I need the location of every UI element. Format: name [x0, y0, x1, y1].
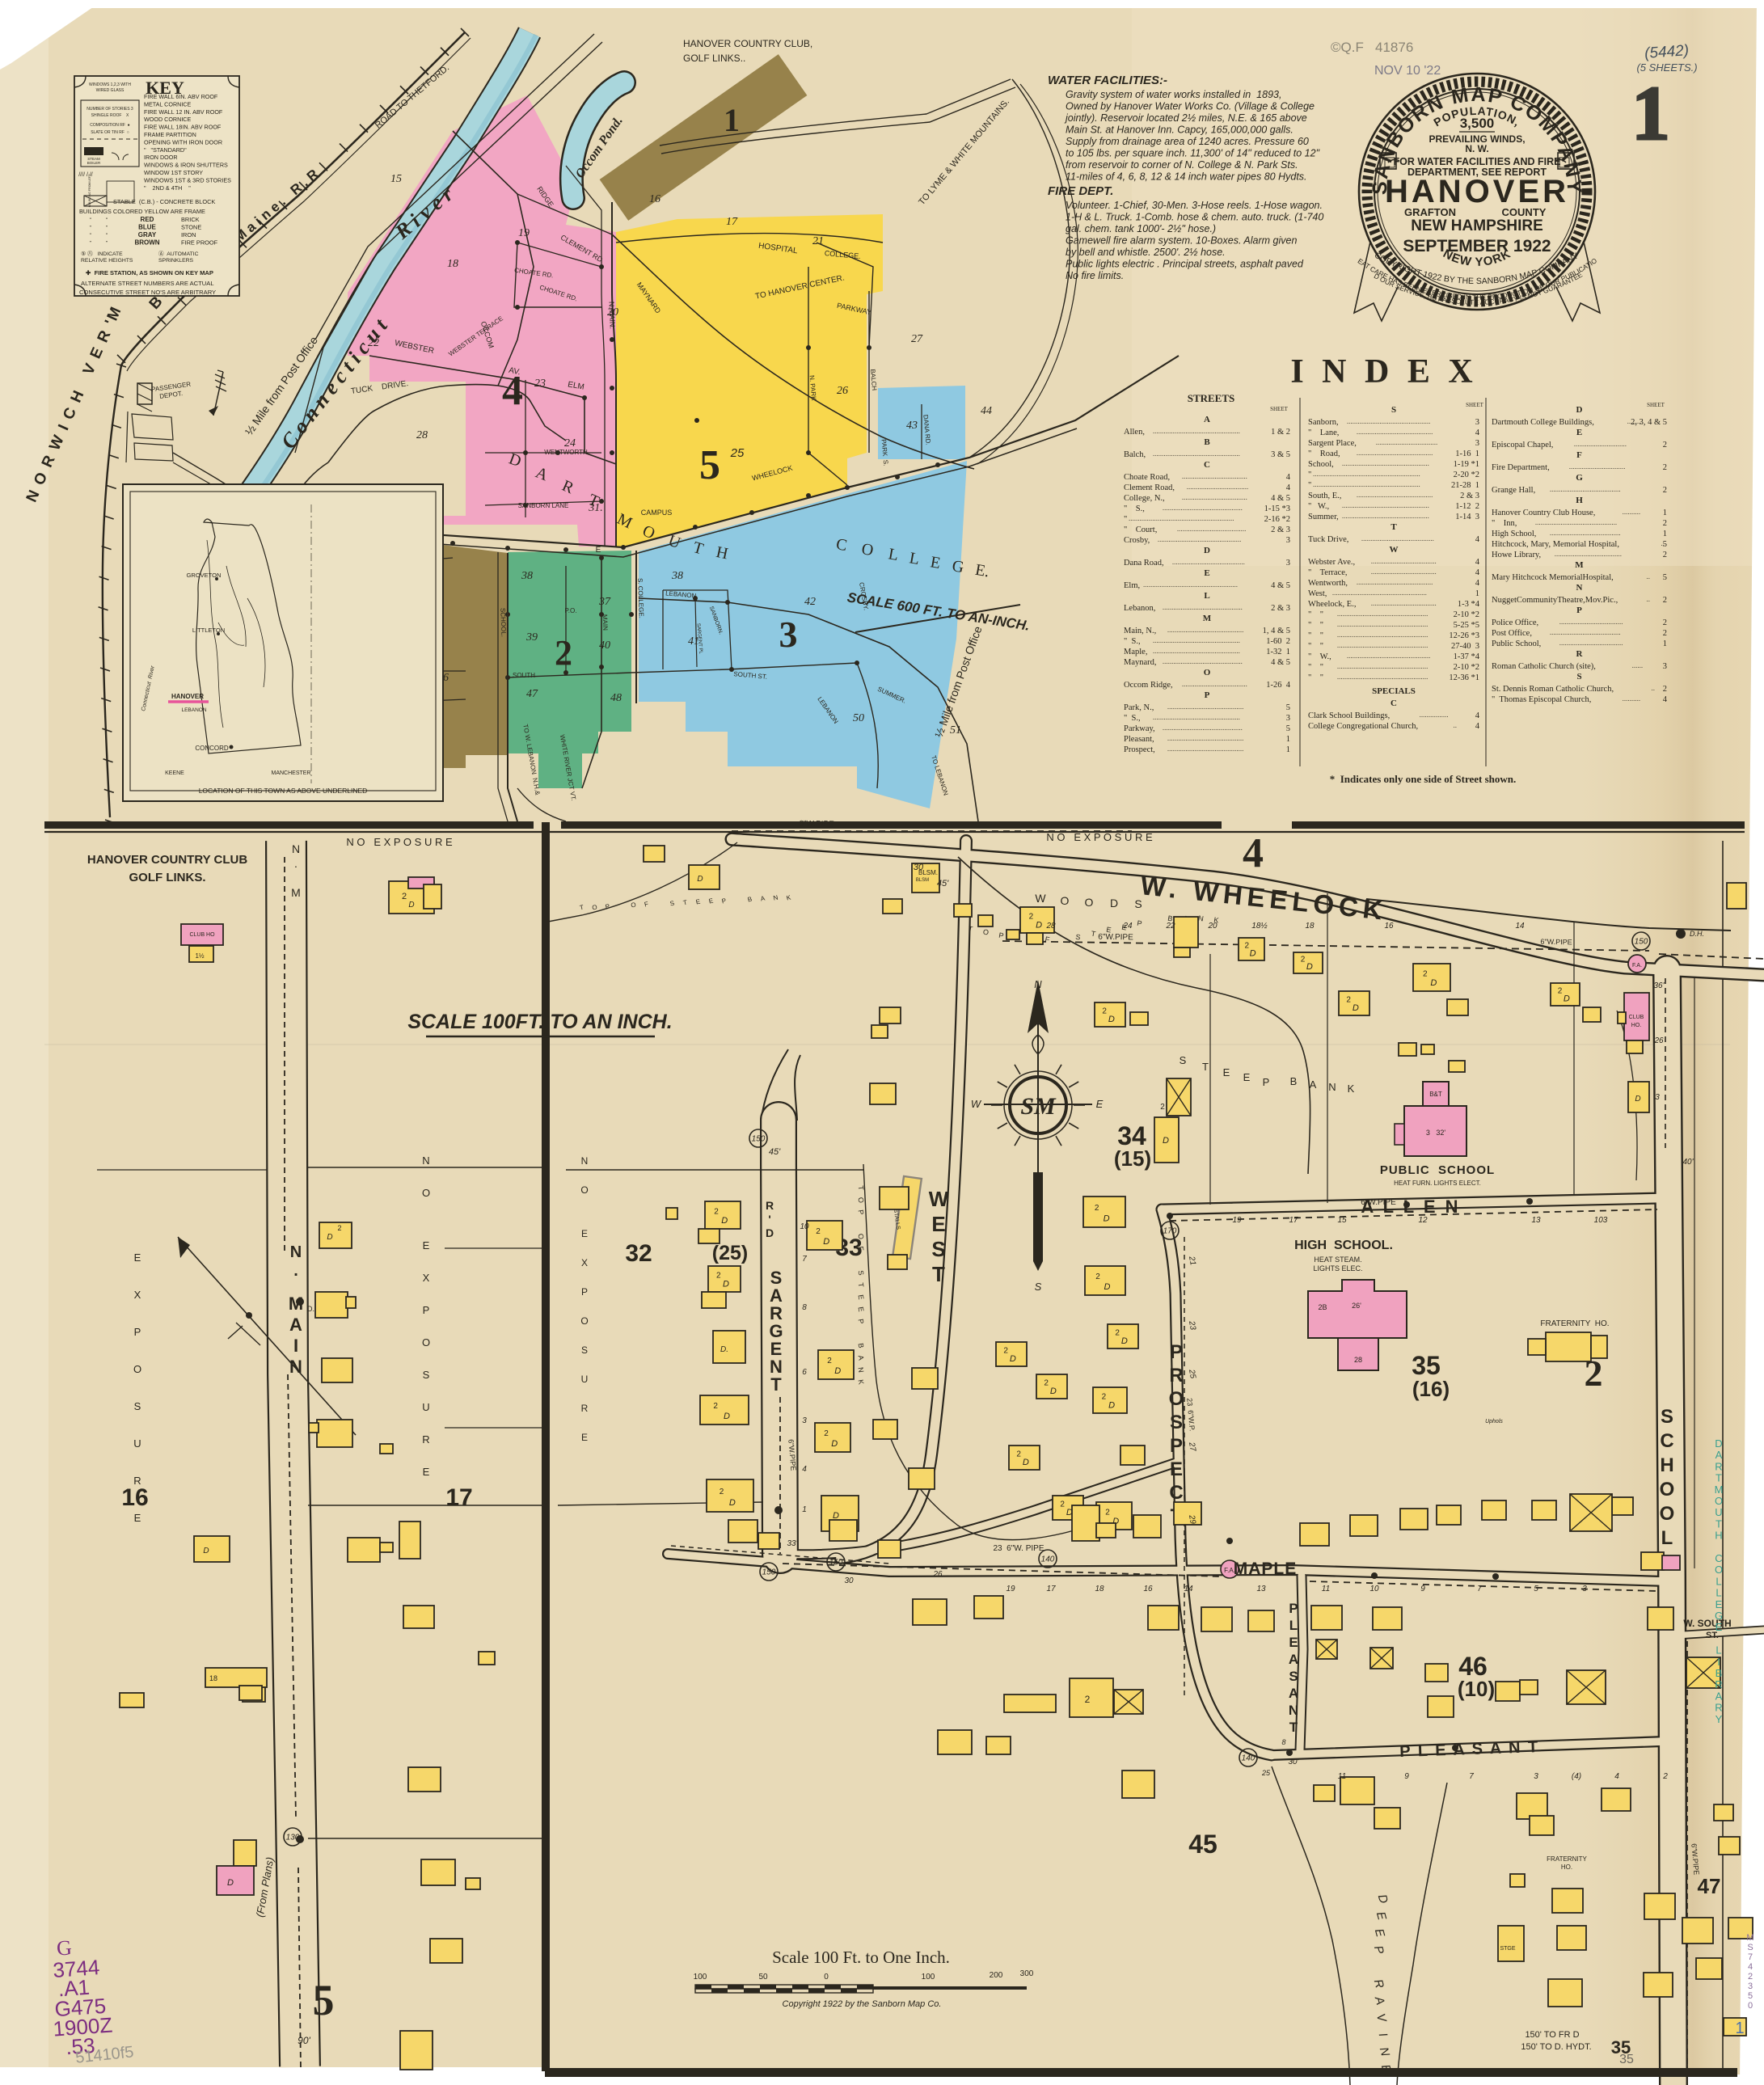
- svg-text:Roman Catholic Church (site),: Roman Catholic Church (site),: [1492, 662, 1596, 671]
- svg-text:16: 16: [121, 1484, 148, 1511]
- svg-text:2-20 *2: 2-20 *2: [1454, 471, 1479, 479]
- svg-text:D: D: [327, 1233, 332, 1242]
- svg-text:FRATERNITY: FRATERNITY: [1547, 1855, 1587, 1863]
- svg-text:28: 28: [1045, 922, 1056, 931]
- svg-text:L: L: [1204, 591, 1209, 601]
- svg-text:MAIN: MAIN: [601, 614, 610, 631]
- svg-text:..............................: ........................................…: [1342, 512, 1429, 520]
- svg-text:..............................: ......................................: [1177, 525, 1247, 533]
- svg-text:1, 4 & 5: 1, 4 & 5: [1263, 627, 1290, 635]
- svg-text:O: O: [133, 1363, 141, 1375]
- svg-text:..............................: ....................................: [1371, 568, 1437, 576]
- svg-text:5: 5: [1663, 540, 1667, 549]
- svg-text:A: A: [1715, 1449, 1723, 1461]
- svg-text:27: 27: [1187, 1441, 1197, 1452]
- svg-text:Main St. at Hanover Inn. Capcy: Main St. at Hanover Inn. Capcy, 165,000,…: [1066, 125, 1293, 136]
- svg-text:R: R: [1715, 1702, 1722, 1714]
- svg-text:D: D: [831, 1439, 838, 1449]
- svg-text:P.O.: P.O.: [565, 607, 577, 614]
- svg-text:SM: SM: [1020, 1093, 1057, 1120]
- svg-text:" Road,: " Road,: [1308, 449, 1340, 458]
- svg-text:M: M: [1746, 1933, 1753, 1943]
- svg-text:E: E: [581, 1432, 588, 1443]
- svg-text:GRAFTON: GRAFTON: [1404, 206, 1456, 218]
- svg-text:18: 18: [1095, 1585, 1104, 1593]
- svg-text:Gamewell fire alarm system. 10: Gamewell fire alarm system. 10-Boxes. Al…: [1066, 235, 1297, 247]
- svg-text:WIRED GLASS: WIRED GLASS: [96, 88, 124, 93]
- svg-text:Tuck Drive,: Tuck Drive,: [1308, 535, 1348, 544]
- svg-text:W: W: [1035, 892, 1046, 905]
- svg-text:D: D: [1635, 1095, 1640, 1104]
- svg-text:N: N: [292, 842, 300, 855]
- svg-text:..............................: ........................................…: [1337, 631, 1429, 639]
- svg-text:SCHOOL.: SCHOOL.: [499, 608, 507, 637]
- svg-text:14: 14: [1515, 922, 1525, 931]
- svg-text:STREETS: STREETS: [1188, 392, 1235, 404]
- svg-text:26': 26': [1352, 1302, 1361, 1310]
- svg-text:SHEET: SHEET: [1647, 402, 1665, 408]
- svg-text:LITTLETON: LITTLETON: [192, 627, 225, 634]
- svg-text:B&T: B&T: [1429, 1091, 1442, 1098]
- svg-text:BOILER: BOILER: [87, 161, 101, 165]
- svg-text:..: ..: [1454, 721, 1458, 729]
- svg-text:✚ FIRE STATION, AS SHOWN ON K: ✚ FIRE STATION, AS SHOWN ON KEY MAP: [86, 269, 213, 276]
- svg-text:B: B: [1290, 1075, 1298, 1087]
- svg-text:E: E: [1289, 1635, 1298, 1650]
- svg-text:C: C: [1391, 699, 1397, 708]
- svg-text:(10): (10): [1458, 1677, 1495, 1701]
- svg-text:(16): (16): [1412, 1377, 1450, 1401]
- svg-text:17: 17: [1289, 1216, 1298, 1225]
- svg-text:S: S: [931, 1237, 945, 1261]
- svg-text:" ": " ": [90, 233, 108, 238]
- svg-text:..............................: ....................................: [1182, 680, 1247, 688]
- svg-text:3: 3: [1475, 439, 1479, 448]
- svg-text:Supply from drainage area of 1: Supply from drainage area of 1240 acres.…: [1066, 136, 1309, 147]
- svg-text:" S.,: " S.,: [1124, 637, 1141, 646]
- svg-text:100: 100: [694, 1973, 707, 1982]
- svg-text:R: R: [581, 1403, 589, 1414]
- svg-text:2: 2: [1029, 912, 1034, 921]
- svg-text:O: O: [422, 1187, 430, 1199]
- svg-text:4: 4: [1614, 1772, 1619, 1781]
- svg-text:T: T: [1715, 1517, 1722, 1530]
- svg-text:2: 2: [402, 892, 407, 901]
- svg-text:No fire limits.: No fire limits.: [1066, 270, 1124, 281]
- svg-text:N O E X P O S U R E: N O E X P O S U R E: [346, 836, 453, 848]
- svg-text:90': 90': [298, 2035, 310, 2046]
- svg-text:S: S: [1661, 1406, 1673, 1428]
- svg-text:2: 2: [1663, 463, 1667, 472]
- svg-text:" "STANDARD": " "STANDARD": [144, 146, 187, 154]
- svg-text:K: K: [1348, 1083, 1355, 1095]
- svg-text:..............................: ........................................…: [1153, 636, 1240, 644]
- svg-text:6"W.PIPE: 6"W.PIPE: [1540, 938, 1572, 947]
- svg-text:D: D: [203, 1547, 209, 1555]
- svg-text:P: P: [1289, 1601, 1298, 1616]
- svg-text:N: N: [581, 1155, 589, 1167]
- svg-text:2: 2: [1244, 942, 1249, 951]
- svg-text:HIGH SCHOOL.: HIGH SCHOOL.: [1294, 1239, 1393, 1252]
- svg-text:IRON DOOR: IRON DOOR: [144, 154, 178, 161]
- svg-text:D: D: [1036, 921, 1042, 931]
- svg-text:24: 24: [1122, 922, 1133, 931]
- svg-text:COUNTING FROM LEFT: COUNTING FROM LEFT: [88, 174, 91, 207]
- svg-text:HANOVER: HANOVER: [1385, 174, 1569, 209]
- svg-text:(25): (25): [712, 1242, 748, 1264]
- svg-text:4: 4: [1475, 579, 1480, 588]
- svg-text:45': 45': [769, 1147, 781, 1157]
- svg-text:35: 35: [1619, 2053, 1634, 2066]
- svg-text:2-10 *2: 2-10 *2: [1454, 663, 1479, 672]
- svg-text:3: 3: [1534, 1772, 1538, 1781]
- svg-text:17: 17: [1046, 1585, 1056, 1593]
- svg-text:E: E: [1170, 1458, 1183, 1480]
- svg-text:D: D: [724, 1412, 730, 1421]
- svg-text:P: P: [423, 1304, 430, 1316]
- svg-text:RELATIVE HEIGHTS: RELATIVE HEIGHTS: [81, 258, 133, 264]
- svg-text:G: G: [1715, 1610, 1723, 1622]
- svg-text:4 & 5: 4 & 5: [1271, 494, 1290, 503]
- svg-text:": ": [1124, 515, 1127, 524]
- svg-text:O: O: [580, 1184, 588, 1196]
- svg-text:28: 28: [416, 429, 428, 441]
- svg-text:47: 47: [526, 688, 538, 700]
- svg-text:O: O: [580, 1315, 588, 1327]
- svg-text:" S.,: " S.,: [1124, 714, 1141, 723]
- svg-text:..............................: .......................................: [1550, 485, 1621, 493]
- svg-text:1-16 1: 1-16 1: [1455, 449, 1479, 458]
- svg-text:Maple,: Maple,: [1124, 648, 1147, 656]
- svg-text:O: O: [1715, 1564, 1723, 1576]
- svg-text:5: 5: [1286, 724, 1290, 733]
- svg-text:N.MAIN.: N.MAIN.: [607, 302, 616, 329]
- svg-text:50: 50: [758, 1973, 768, 1982]
- svg-text:D: D: [697, 875, 703, 884]
- svg-text:..............................: ........................................…: [1337, 620, 1429, 628]
- svg-text:D: D: [1023, 1458, 1029, 1467]
- svg-text:..............................: ........................................…: [1337, 641, 1429, 649]
- svg-text:4: 4: [1286, 473, 1291, 482]
- svg-text:Sargent Place,: Sargent Place,: [1308, 439, 1357, 448]
- svg-text:Choate Road,: Choate Road,: [1124, 473, 1170, 482]
- svg-text:Uphols: Uphols: [1485, 1419, 1503, 1424]
- svg-text:2-10 *2: 2-10 *2: [1454, 610, 1479, 619]
- svg-text:16: 16: [649, 193, 660, 205]
- svg-text:..............................: ........................................…: [1163, 657, 1243, 665]
- svg-text:CAMPUS: CAMPUS: [641, 509, 673, 517]
- svg-text:E: E: [581, 1228, 588, 1239]
- svg-text:(4): (4): [1572, 1772, 1581, 1781]
- svg-text:43: 43: [906, 420, 918, 432]
- svg-text:1: 1: [1735, 2020, 1744, 2037]
- svg-text:21: 21: [1187, 1255, 1197, 1266]
- svg-text:9: 9: [1420, 1585, 1425, 1593]
- svg-text:..............................: ........................................…: [1332, 589, 1427, 597]
- svg-text:3,500: 3,500: [1460, 116, 1495, 131]
- svg-text:Fire Department,: Fire Department,: [1492, 463, 1550, 472]
- svg-text:5: 5: [1663, 573, 1667, 582]
- svg-text:U: U: [1715, 1506, 1722, 1518]
- svg-text:..............................: ........................................…: [1357, 428, 1433, 436]
- svg-text:©Q.F 41876: ©Q.F 41876: [1331, 40, 1413, 55]
- svg-text:23: 23: [534, 378, 546, 390]
- svg-text:..............................: ........................................…: [1153, 713, 1240, 721]
- svg-text:5: 5: [1748, 1991, 1753, 2001]
- svg-text:..............................: ........................................…: [1153, 449, 1240, 458]
- svg-text:7: 7: [1469, 1772, 1474, 1781]
- svg-text:17: 17: [726, 216, 738, 228]
- svg-text:E: E: [931, 1212, 945, 1236]
- svg-text:Ⓐ AUTOMATIC: Ⓐ AUTOMATIC: [158, 251, 199, 257]
- svg-text:FIRE WALL 12 IN. ABV ROOF: FIRE WALL 12 IN. ABV ROOF: [144, 108, 223, 116]
- svg-text:FRAME PARTITION: FRAME PARTITION: [144, 131, 196, 138]
- svg-text:Volunteer. 1-Chief, 30-Men. 3-: Volunteer. 1-Chief, 30-Men. 3-Hose reels…: [1066, 200, 1323, 211]
- svg-text:H: H: [1576, 496, 1583, 505]
- svg-text:11: 11: [1338, 1772, 1346, 1781]
- svg-text:200: 200: [990, 1971, 1003, 1980]
- svg-text:..............................: ........................................…: [1167, 734, 1244, 742]
- svg-text:S: S: [423, 1369, 430, 1381]
- svg-text:Dana Road,: Dana Road,: [1124, 559, 1164, 568]
- svg-text:X: X: [423, 1272, 430, 1284]
- svg-text:P: P: [1263, 1076, 1270, 1088]
- svg-text:33': 33': [787, 1539, 798, 1548]
- svg-text:D: D: [1353, 1003, 1359, 1013]
- svg-text:..............................: ........................................…: [1313, 480, 1420, 488]
- svg-text:150' TO FR D: 150' TO FR D: [1525, 2030, 1579, 2040]
- svg-text:R: R: [422, 1433, 429, 1446]
- svg-text:2: 2: [1044, 1379, 1049, 1388]
- svg-text:..............................: ........................................…: [1153, 427, 1240, 435]
- svg-text:LEBANON: LEBANON: [181, 707, 206, 713]
- svg-text:gal. chem. tank 1000'- 2½" hos: gal. chem. tank 1000'- 2½" hose.): [1066, 223, 1216, 234]
- svg-text:T: T: [1391, 522, 1397, 532]
- svg-text:U: U: [422, 1401, 429, 1413]
- svg-text:12-26 *3: 12-26 *3: [1449, 631, 1479, 640]
- svg-text:45: 45: [1188, 1830, 1217, 1859]
- svg-text:.: .: [294, 857, 298, 870]
- svg-text:H: H: [1660, 1454, 1673, 1476]
- svg-text:1: 1: [1286, 735, 1290, 744]
- svg-text:D: D: [1715, 1437, 1722, 1450]
- svg-text:LOCATION OF THIS TOWN AS ABOVE: LOCATION OF THIS TOWN AS ABOVE UNDERLINE…: [199, 787, 368, 795]
- svg-text:CONSECUTIVE STREET NO'S ARE AR: CONSECUTIVE STREET NO'S ARE ARBITRARY: [79, 289, 216, 296]
- svg-text:..............................: ........................................…: [1337, 610, 1429, 618]
- svg-text:ALTERNATE STREET NUMBERS ARE A: ALTERNATE STREET NUMBERS ARE ACTUAL: [81, 280, 214, 287]
- svg-text:OPENING WITH IRON DOOR: OPENING WITH IRON DOOR: [144, 138, 222, 146]
- svg-text:D: D: [1050, 1386, 1057, 1396]
- svg-text:..............................: ........................................…: [1347, 417, 1431, 425]
- svg-text:⑤ ㊇ INDICATE: ⑤ ㊇ INDICATE: [81, 251, 123, 257]
- svg-text:5: 5: [699, 442, 720, 488]
- svg-text:WINDOWS 1ST & 3RD STORIES: WINDOWS 1ST & 3RD STORIES: [144, 176, 231, 184]
- svg-text:150: 150: [829, 1559, 843, 1568]
- svg-text:E: E: [596, 546, 601, 555]
- svg-text:N: N: [1328, 1081, 1336, 1093]
- svg-text:BRICK: BRICK: [181, 216, 200, 223]
- svg-text:..............................: ........................................…: [1535, 518, 1617, 526]
- svg-text:" 2ND & 4TH ": " 2ND & 4TH ": [144, 184, 191, 192]
- svg-text:N: N: [1289, 1703, 1298, 1718]
- svg-text:..............................: ........................................…: [1347, 652, 1431, 660]
- svg-text:PUBLIC SCHOOL: PUBLIC SCHOOL: [1380, 1163, 1495, 1177]
- svg-text:0: 0: [1748, 2001, 1753, 2011]
- svg-text:19: 19: [1232, 1216, 1242, 1225]
- svg-text:2: 2: [716, 1271, 721, 1280]
- svg-text:36': 36': [1653, 981, 1665, 990]
- svg-text:FRATERNITY HO.: FRATERNITY HO.: [1540, 1319, 1609, 1328]
- svg-text:B: B: [1204, 437, 1210, 447]
- svg-text:140: 140: [1242, 1754, 1255, 1763]
- svg-text:D: D: [721, 1216, 728, 1226]
- svg-text:2-16 *2: 2-16 *2: [1264, 515, 1290, 524]
- svg-text:1-37 *4: 1-37 *4: [1454, 652, 1480, 661]
- svg-text:D: D: [1564, 994, 1570, 1003]
- svg-text:2: 2: [1160, 1103, 1165, 1112]
- svg-text:MANCHESTER: MANCHESTER: [271, 770, 310, 776]
- svg-text:1: 1: [1663, 639, 1667, 648]
- svg-text:': ': [768, 1213, 770, 1226]
- svg-text:..............................: ..................................: [1187, 483, 1249, 491]
- svg-text:D: D: [1250, 948, 1256, 958]
- svg-text:S: S: [134, 1400, 141, 1412]
- svg-text:D: D: [723, 1280, 729, 1289]
- svg-text:HANOVER COUNTRY CLUB: HANOVER COUNTRY CLUB: [87, 853, 248, 867]
- svg-text:1-12 2: 1-12 2: [1455, 502, 1479, 511]
- svg-text:.............................: .............................: [1574, 440, 1627, 448]
- svg-text:Clement Road,: Clement Road,: [1124, 483, 1175, 492]
- svg-text:29: 29: [1187, 1513, 1197, 1525]
- svg-text:2: 2: [1663, 551, 1667, 559]
- svg-text:30': 30': [1288, 1758, 1299, 1766]
- svg-text:2: 2: [1663, 441, 1667, 449]
- svg-text:F: F: [1576, 450, 1582, 460]
- svg-text:11: 11: [1322, 1585, 1330, 1593]
- svg-text:D: D: [1104, 1282, 1111, 1292]
- svg-text:A L L E N: A L L E N: [1361, 1197, 1460, 1217]
- svg-text:HEAT FURN. LIGHTS ELECT.: HEAT FURN. LIGHTS ELECT.: [1394, 1180, 1481, 1187]
- svg-text:37: 37: [598, 596, 611, 608]
- svg-text:1: 1: [1475, 589, 1479, 598]
- svg-text:12: 12: [1418, 1216, 1428, 1225]
- svg-text:23: 23: [1187, 1319, 1197, 1331]
- svg-text:..............................: ........................................…: [1337, 673, 1429, 681]
- svg-text:25: 25: [730, 446, 745, 460]
- svg-text:HEAT STEAM.: HEAT STEAM.: [1314, 1256, 1361, 1264]
- svg-text:" ": " ": [90, 226, 108, 231]
- svg-text:1-19 *1: 1-19 *1: [1454, 460, 1479, 469]
- svg-text:FOR WATER FACILITIES AND FIRE: FOR WATER FACILITIES AND FIRE: [1394, 156, 1561, 167]
- svg-text:Sanborn,: Sanborn,: [1308, 418, 1339, 427]
- svg-text:S: S: [1289, 1669, 1298, 1684]
- svg-text:..............................: ........................................…: [1342, 501, 1429, 509]
- svg-text:2: 2: [1663, 629, 1667, 638]
- svg-text:D: D: [1108, 1015, 1115, 1024]
- svg-text:L: L: [1715, 1575, 1721, 1587]
- svg-text:N: N: [422, 1154, 429, 1167]
- svg-text:Post Office,: Post Office,: [1492, 629, 1532, 638]
- svg-text:3: 3: [1582, 1585, 1587, 1593]
- svg-text:1½: 1½: [195, 952, 204, 960]
- svg-text:F.A.: F.A.: [1632, 963, 1642, 969]
- svg-text:T: T: [1202, 1061, 1209, 1073]
- svg-text:N O E X P O S U R E: N O E X P O S U R E: [1046, 831, 1153, 843]
- svg-text:GOLF LINKS..: GOLF LINKS..: [683, 53, 745, 64]
- svg-text:P: P: [134, 1326, 141, 1338]
- svg-text:SHEET: SHEET: [1270, 406, 1289, 412]
- svg-text:..............................: ....................................: [1371, 599, 1437, 607]
- svg-text:..............................: ........................................…: [1163, 504, 1243, 512]
- svg-text:1 & 2: 1 & 2: [1271, 428, 1290, 437]
- svg-text:..............................: .......................................: [1550, 628, 1621, 636]
- svg-text:" Inn,: " Inn,: [1492, 519, 1517, 528]
- svg-text:X: X: [581, 1257, 588, 1268]
- svg-text:32: 32: [625, 1240, 652, 1267]
- svg-text:1: 1: [1631, 70, 1670, 156]
- svg-text:..............................: ........................................…: [1153, 647, 1240, 655]
- svg-text:..............................: .....................................: [1555, 550, 1622, 558]
- svg-text:M: M: [1575, 560, 1584, 570]
- svg-text:D: D: [1306, 962, 1313, 972]
- svg-text:7: 7: [1477, 1585, 1482, 1593]
- svg-text:X: X: [134, 1289, 141, 1301]
- svg-text:E: E: [423, 1239, 430, 1251]
- svg-text:..............................: ........................................…: [1337, 662, 1429, 670]
- svg-text:18: 18: [447, 258, 458, 270]
- svg-text:..........: ..........: [1623, 508, 1641, 516]
- svg-text:T: T: [1289, 1720, 1298, 1735]
- svg-text:5: 5: [313, 1976, 335, 2024]
- svg-text:2: 2: [1662, 1772, 1668, 1781]
- svg-text:..............................: ..................................: [1376, 438, 1438, 446]
- svg-text:150: 150: [1635, 938, 1648, 947]
- svg-text:MAPLE: MAPLE: [1234, 1560, 1298, 1578]
- svg-text:to 105 lbs. per square inch. 1: to 105 lbs. per square inch. 11,300' of …: [1066, 148, 1320, 159]
- svg-text:L: L: [1289, 1618, 1298, 1633]
- svg-text:11-miles of 4, 6, 8, 12 & 14 i: 11-miles of 4, 6, 8, 12 & 14 inch water …: [1066, 171, 1307, 183]
- svg-text:2: 2: [816, 1227, 821, 1236]
- svg-text:R: R: [1715, 1460, 1722, 1472]
- svg-text:N. W.: N. W.: [1465, 143, 1488, 154]
- svg-text:W: W: [971, 1098, 982, 1110]
- svg-text:2: 2: [1102, 1007, 1107, 1016]
- svg-text:": ": [1308, 481, 1311, 490]
- svg-text:Elm,: Elm,: [1124, 581, 1140, 590]
- svg-text:R: R: [1169, 1365, 1183, 1386]
- svg-text:0: 0: [824, 1973, 829, 1982]
- svg-text:1-3 *4: 1-3 *4: [1458, 600, 1480, 609]
- svg-text:T: T: [932, 1262, 945, 1286]
- svg-text:19: 19: [518, 227, 530, 239]
- svg-text:2: 2: [1095, 1204, 1099, 1213]
- svg-text:R: R: [1715, 1678, 1722, 1690]
- svg-text:T: T: [770, 1374, 782, 1395]
- svg-text:30: 30: [844, 1576, 854, 1585]
- svg-text:D: D: [1163, 1136, 1169, 1146]
- svg-text:Hanover Country Club House,: Hanover Country Club House,: [1492, 509, 1595, 517]
- svg-text:SPRINKLERS: SPRINKLERS: [158, 258, 194, 264]
- svg-text:2: 2: [1085, 1694, 1091, 1705]
- svg-text:D: D: [408, 901, 414, 910]
- svg-text:2 & 3: 2 & 3: [1271, 525, 1290, 534]
- svg-text:jointly). Reservoir located 2½: jointly). Reservoir located 2½ miles, N.…: [1064, 112, 1307, 124]
- svg-text:Howe Library,: Howe Library,: [1492, 551, 1541, 559]
- svg-text:9: 9: [1404, 1772, 1409, 1781]
- svg-text:FIRE WALL 6IN. ABV ROOF: FIRE WALL 6IN. ABV ROOF: [144, 93, 218, 100]
- svg-text:S: S: [1391, 405, 1396, 415]
- svg-text:4: 4: [1243, 830, 1264, 876]
